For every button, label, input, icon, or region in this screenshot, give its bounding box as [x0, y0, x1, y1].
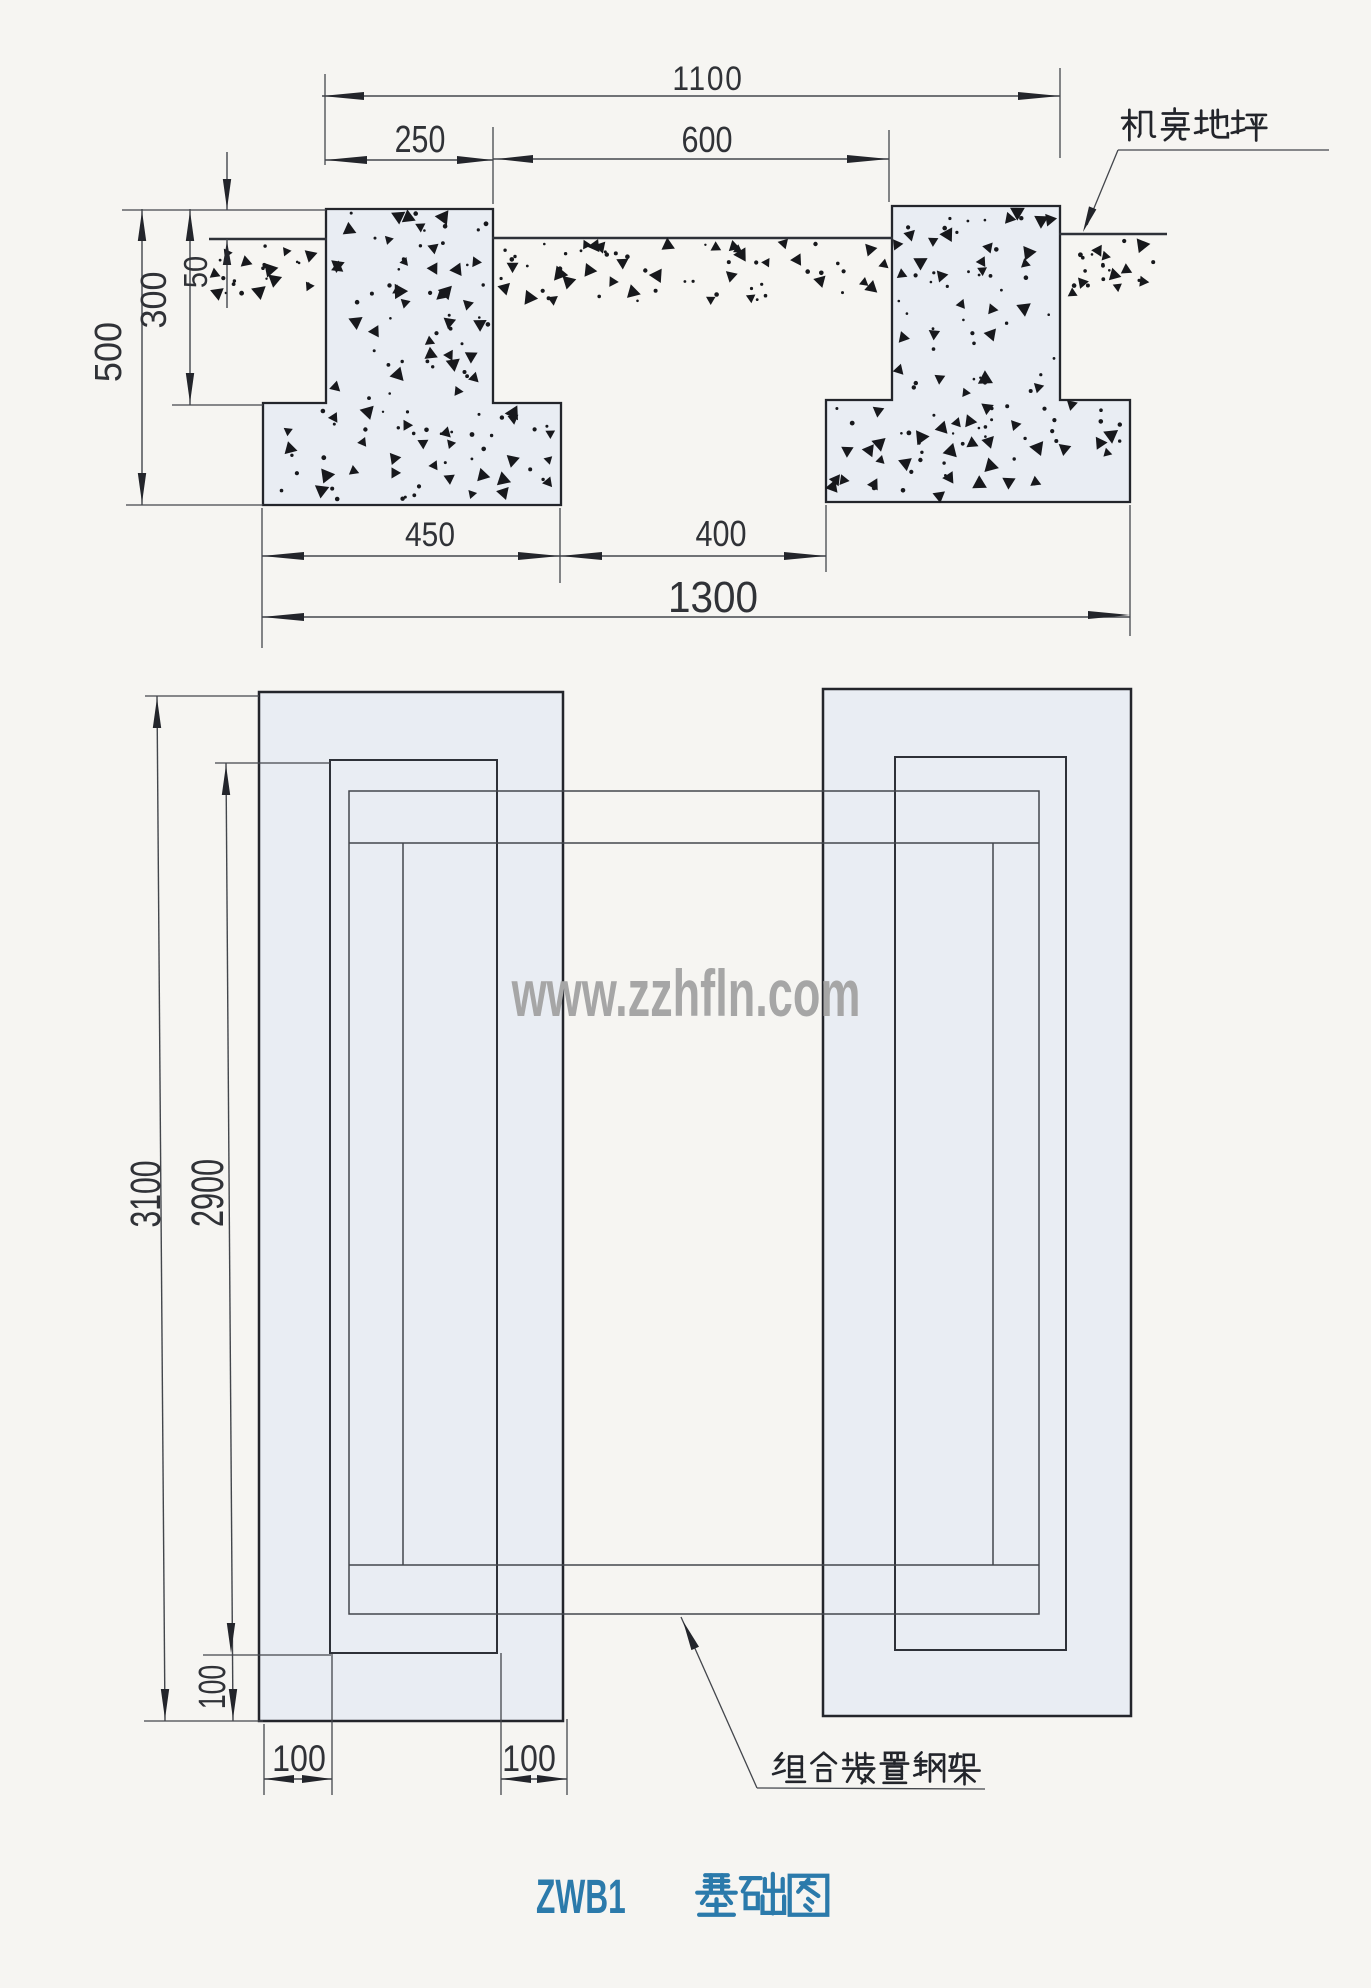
- svg-text:250: 250: [395, 119, 446, 161]
- svg-text:100: 100: [272, 1739, 326, 1780]
- svg-text:300: 300: [134, 271, 174, 328]
- svg-text:400: 400: [695, 515, 746, 555]
- svg-text:www.zzhfln.com: www.zzhfln.com: [511, 956, 861, 1030]
- svg-text:100: 100: [190, 1665, 233, 1709]
- svg-text:3100: 3100: [121, 1161, 170, 1228]
- svg-text:50: 50: [177, 256, 214, 288]
- svg-text:2900: 2900: [183, 1159, 233, 1227]
- svg-text:1100: 1100: [672, 59, 743, 97]
- svg-text:600: 600: [681, 121, 732, 161]
- svg-text:1300: 1300: [668, 572, 758, 621]
- svg-text:ZWB1: ZWB1: [536, 1869, 626, 1923]
- svg-text:100: 100: [502, 1739, 556, 1780]
- svg-text:500: 500: [86, 322, 129, 382]
- svg-text:450: 450: [405, 515, 455, 553]
